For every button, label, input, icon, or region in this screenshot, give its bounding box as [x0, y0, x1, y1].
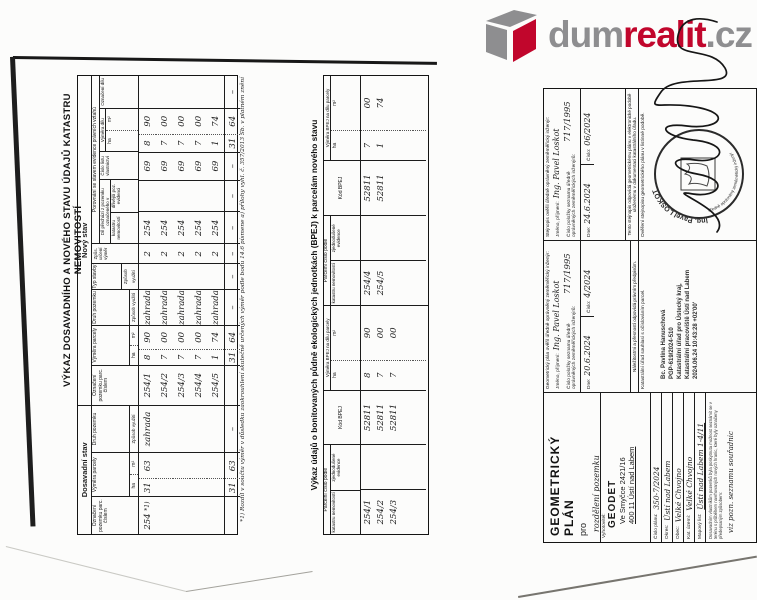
bpej-parcel: 254/5: [374, 260, 387, 305]
vykaz-footnote: *1) Rozdíl v součtu výměr v důsledku zao…: [240, 77, 246, 535]
new-dil-m2: 00: [190, 108, 207, 134]
bpej-kod: 52811: [374, 390, 387, 445]
vykaz-table: Dosavadní stav Nový stav Označení pozemk…: [77, 75, 238, 535]
titleblock-left-column: GEOMETRICKÝ PLÁN pro rozdělení pozemku V…: [544, 392, 756, 542]
total-dil-ha: 31: [225, 134, 240, 152]
new-dil-ha: 1: [207, 134, 224, 152]
signer-name: Bc. Pavlína Hanuschová: [660, 244, 668, 379]
bpej-ha: 7: [374, 360, 387, 390]
new-dil-m2: 00: [173, 108, 190, 134]
jmeno-label: Jméno, příjmení:: [556, 201, 561, 237]
gp-overil-box: Geometrický plán ověřil úředně oprávněný…: [544, 241, 639, 392]
col-dpe: dřívější poz. evidenci: [111, 180, 138, 211]
bpej-row: 254/2 52811 7 00: [374, 306, 387, 534]
polozka-value: 717/1995: [563, 253, 573, 294]
overeni-stejnopisu-cell: Ověření stejnopisu geometrického plánu v…: [639, 89, 756, 240]
katastralni-urad-cell: Katastrální úřad souhlasí s očíslováním …: [639, 241, 756, 392]
col-new-vymera: Výměra parcely: [93, 328, 99, 363]
logo-box-icon: [484, 6, 538, 62]
new-parcel: 254/3: [173, 365, 190, 405]
field-obec: Obec:Velké Chvojno: [672, 393, 683, 542]
new-m2: 74: [207, 325, 224, 349]
col-old-vymera: Výměra parcely: [93, 457, 99, 492]
col-bpej-ha: ha: [331, 130, 360, 160]
bpej-kod: 52811: [387, 390, 400, 445]
col-bpej-m2: m²: [331, 76, 360, 130]
field-label: Číslo plánu:: [654, 514, 659, 539]
new-kn: 254: [173, 211, 190, 243]
field-mapovy-list: Mapový list:Ústí nad Labem 1-4/11: [694, 393, 705, 542]
col-dil-ha: ha: [106, 130, 138, 152]
bpej-group-2: Parcelní číslo podle katastru nemovitost…: [324, 76, 428, 305]
gp-overil-footer: Náležitostmi a přesností odpovídá právní…: [630, 241, 638, 392]
vyhotovitel-addr2: 400 11 Ústí nad Labem: [627, 397, 636, 524]
vykaz-row: 254/2 7 00 zahrada 2 254 69 7 00: [156, 76, 173, 534]
new-ha: 8: [139, 349, 156, 365]
geometric-plan-titleblock: GEOMETRICKÝ PLÁN pro rozdělení pozemku V…: [543, 88, 757, 543]
col-kn: katastru nemovitostí: [111, 212, 138, 244]
owners-note: Dosavadním vlastníkům pozemků byla posky…: [708, 396, 723, 539]
new-kn: 254: [156, 211, 173, 243]
col-new-druh: Druh pozemku: [93, 291, 99, 324]
new-lv: 69: [139, 152, 156, 180]
total-dash: –: [225, 243, 240, 263]
katurad-header: Katastrální úřad souhlasí s očíslováním …: [641, 244, 646, 389]
bpej-parcel: 254/3: [387, 489, 400, 534]
bpej-group-1: Parcelní číslo podle katastru nemovitost…: [324, 305, 428, 534]
vykaz-row: 254/3 7 00 zahrada 2 254 69 7 00: [173, 76, 190, 534]
total-dash: –: [225, 289, 240, 325]
bpej-m2: 00: [361, 76, 374, 130]
stejnopis-footer: Tento stejnopis odpovídá geometrickému p…: [625, 89, 638, 240]
col-new-m2: m²: [130, 326, 138, 345]
jmeno-value: Ing. Pavel Loskot: [552, 128, 561, 198]
bpej-ha: 7: [361, 130, 374, 160]
bpej-title: Výkaz údajů o bonitovaných půdně ekologi…: [309, 75, 319, 535]
new-druh: zahrada: [190, 289, 207, 325]
col-typ-zpusob: Způsob využití: [122, 264, 138, 289]
owners-note-handwritten: viz pozn. seznamu souřadnic: [727, 396, 735, 533]
new-dil-ha: 8: [139, 134, 156, 152]
col-new-ha: ha: [130, 345, 138, 365]
total-dash: –: [225, 211, 240, 243]
polozka-value: 717/1995: [563, 101, 573, 142]
bpej-ha: 7: [387, 360, 400, 390]
gp-overil-header: Geometrický plán ověřil úředně oprávněný…: [544, 241, 551, 392]
col-new-zpusob: Způsob využití: [130, 290, 138, 325]
gp-pro: pro: [578, 399, 588, 536]
col-typ-stavby: Typ stavby: [93, 265, 99, 289]
bpej-kod: 52811: [361, 160, 374, 215]
new-druh: zahrada: [156, 289, 173, 325]
new-zpus: 2: [156, 243, 173, 263]
col-kod-bpej: Kód BPEJ: [339, 406, 345, 429]
jmeno-value: Ing. Pavel Loskot: [552, 280, 561, 350]
new-parcel: 254/5: [207, 365, 224, 405]
bpej-parcel: 254/1: [361, 489, 374, 534]
polozka-label: Číslo položky seznamu úředně oprávněných…: [567, 145, 577, 237]
scan-crease-right: [518, 556, 757, 598]
col-kod-bpej: Kód BPEJ: [339, 177, 345, 200]
new-druh: zahrada: [139, 289, 156, 325]
vykaz-table-rotated: VÝKAZ DOSAVADNÍHO A NOVÉHO STAVU ÚDAJŮ K…: [62, 75, 260, 535]
col-old-druh: Druh pozemku: [93, 413, 99, 446]
new-kn: 254: [207, 211, 224, 243]
new-m2: 00: [190, 325, 207, 349]
total-dash: –: [225, 405, 240, 453]
new-parcel: 254/4: [190, 365, 207, 405]
bpej-parcel: 254/2: [374, 489, 387, 534]
vykaz-new-state-header: Nový stav: [78, 76, 91, 405]
bpej-ha: 1: [374, 130, 387, 160]
field-value: Ústí nad Labem: [663, 461, 672, 521]
cislo-value: 4/2024: [583, 270, 592, 298]
field-value: 350-7/2024: [652, 466, 661, 509]
col-oznaceni-dilu: Označení dílu: [100, 76, 138, 108]
polozka-label: Číslo položky seznamu úředně oprávněných…: [567, 297, 577, 389]
new-druh: zahrada: [173, 289, 190, 325]
total-old-ha: 31: [225, 478, 240, 496]
total-new-ha: 31: [225, 349, 240, 365]
new-m2: 00: [156, 325, 173, 349]
authority-line2: Katastrální pracoviště Ústí nad Labem: [684, 244, 692, 379]
scanned-geometric-plan-page: dumrealit.cz VÝKAZ DOSAVADNÍHO A NOVÉHO …: [0, 0, 757, 600]
cislo-label: Číslo:: [587, 149, 592, 161]
new-ha: 7: [190, 349, 207, 365]
total-dash: –: [225, 76, 240, 108]
new-dil-ha: 7: [190, 134, 207, 152]
new-zpus: 2: [190, 243, 207, 263]
bpej-row: 254/1 52811 8 90: [361, 306, 374, 534]
logo-text-dum: dum: [548, 14, 623, 55]
field-label: Kat. území:: [687, 515, 692, 539]
scan-edge-left: [10, 57, 35, 527]
owners-note-cell: Dosavadním vlastníkům pozemků byla posky…: [705, 393, 756, 542]
titleblock-middle-column: Geometrický plán ověřil úředně oprávněný…: [544, 240, 756, 392]
stejnopis-header: Stejnopis ověřil úředně oprávněný zeměmě…: [544, 89, 551, 240]
vykaz-row: 254/5 1 74 zahrada 2 254 69 1 74: [207, 76, 224, 534]
col-old-ha: ha: [130, 474, 138, 496]
new-zpus: 2: [207, 243, 224, 263]
dne-value: 24.6.2024: [583, 183, 592, 224]
new-lv: 69: [207, 152, 224, 180]
col-lv: Číslo listu vlastnictví: [100, 151, 138, 179]
col-bpej-ze: zjednodušené evidence: [331, 216, 360, 261]
field-kat-uzemi: Kat. území:Velké Chvojno: [683, 393, 694, 542]
new-kn: 254: [190, 211, 207, 243]
dne-label: Dne:: [587, 379, 592, 389]
field-cislo-planu: Číslo plánu:350-7/2024: [650, 393, 661, 542]
col-bpej-ha: ha: [331, 360, 360, 390]
col-dil-m2: m²: [106, 109, 138, 130]
bpej-m2: 00: [374, 306, 387, 360]
stejnopis-overil-box: Stejnopis ověřil úředně oprávněný zeměmě…: [544, 89, 639, 240]
total-dash: –: [225, 263, 240, 289]
old-ha: 31: [139, 478, 156, 496]
jmeno-label: Jméno, příjmení:: [556, 353, 561, 389]
vyhotovitel-cell: Vyhotovitel: GEODET Ve Smyčce 2421/16 40…: [600, 393, 650, 542]
signature-timestamp: 2024.06.24 10:43:28 +02'00': [692, 244, 700, 379]
new-m2: 90: [139, 325, 156, 349]
col-zpusob-urceni: Způs. určení výměr: [93, 244, 108, 263]
col-old-parcel: Označení pozemku parc. číslem: [93, 497, 110, 534]
vykaz-old-state-header: Dosavadní stav: [78, 405, 91, 534]
bpej-row: 254/5 52811 1 74: [374, 76, 387, 305]
bpej-table: Parcelní číslo podle katastru nemovitost…: [323, 75, 429, 535]
bpej-kod: 52811: [374, 160, 387, 215]
geometric-plan-titleblock-rotated: GEOMETRICKÝ PLÁN pro rozdělení pozemku V…: [543, 88, 757, 543]
col-dil-prechazi: Díl přechází z pozemku označeného v: [100, 180, 110, 243]
bpej-m2: 00: [387, 306, 400, 360]
cislo-value: 06/2024: [583, 113, 592, 146]
col-porovnani: Porovnání se stavem evidence právních vz…: [92, 107, 99, 212]
new-dil-m2: 90: [139, 108, 156, 134]
new-dil-ha: 7: [156, 134, 173, 152]
bpej-parcel: 254/4: [361, 260, 374, 305]
field-value: Ústí nad Labem 1-4/11: [696, 423, 705, 510]
dne-value: 20.6.2024: [583, 335, 592, 376]
titleblock-right-column: Stejnopis ověřil úředně oprávněný zeměmě…: [544, 89, 756, 240]
digital-signature-block: Bc. Pavlína Hanuschová PGP-619/2024-510 …: [660, 244, 700, 379]
vykaz-totals-row: 31 63 – 31 64 – – – – – – 31 64 –: [224, 76, 240, 534]
col-bpej-m2: m²: [331, 306, 360, 360]
new-lv: 69: [173, 152, 190, 180]
bpej-row: 254/4 52811 7 00: [361, 76, 374, 305]
pgp-number: PGP-619/2024-510: [668, 244, 676, 379]
new-kn: 254: [139, 211, 156, 243]
field-okres: Okres:Ústí nad Labem: [661, 393, 672, 542]
new-ha: 7: [173, 349, 190, 365]
gp-title: GEOMETRICKÝ PLÁN: [548, 399, 576, 536]
field-label: Okres:: [665, 525, 670, 539]
dne-label: Dne:: [587, 227, 592, 237]
new-lv: 69: [190, 152, 207, 180]
field-value: Velké Chvojno: [674, 468, 683, 522]
vykaz-row: 254 *1) 31 63 zahrada 254/1 8 90 zahrada…: [139, 76, 156, 534]
scan-crease-left: [6, 546, 187, 592]
bpej-m2: 74: [374, 76, 387, 130]
total-dil-m2: 64: [225, 108, 240, 134]
new-dil-ha: 7: [173, 134, 190, 152]
field-value: Velké Chvojno: [685, 457, 694, 511]
col-bpej-ze: zjednodušené evidence: [331, 445, 360, 489]
new-zpus: 2: [173, 243, 190, 263]
bpej-row: 254/3 52811 7 00: [387, 306, 400, 534]
col-new-parcel: Označení pozemku parc. číslem: [93, 366, 110, 405]
new-parcel: 254/1: [139, 365, 156, 405]
bpej-table-rotated: Výkaz údajů o bonitovaných půdně ekologi…: [308, 75, 434, 535]
cislo-label: Číslo:: [587, 301, 592, 313]
total-dash: –: [225, 180, 240, 212]
bpej-ha: 8: [361, 360, 374, 390]
col-bpej-kn: katastru nemovitostí: [331, 261, 360, 306]
old-m2: 63: [139, 452, 156, 478]
vyhotovitel-addr1: Ve Smyčce 2421/16: [618, 397, 627, 524]
new-dil-m2: 74: [207, 108, 224, 134]
col-old-m2: m²: [130, 453, 138, 474]
col-old-zpusob: Způsob využití: [130, 406, 138, 453]
new-dil-m2: 00: [156, 108, 173, 134]
authority-line1: Katastrální úřad pro Ústecký kraj,: [676, 244, 684, 379]
scan-edge-top: [13, 56, 437, 65]
new-zpus: 2: [139, 243, 156, 263]
old-parcel: 254 *1): [139, 496, 156, 534]
new-m2: 00: [173, 325, 190, 349]
vyhotovitel-firm: GEODET: [607, 397, 618, 528]
total-old-m2: 63: [225, 452, 240, 478]
new-ha: 1: [207, 349, 224, 365]
field-label: Mapový list:: [698, 514, 703, 539]
new-druh: zahrada: [207, 289, 224, 325]
total-dash: –: [225, 152, 240, 180]
bpej-kod: 52811: [361, 390, 374, 445]
total-new-m2: 64: [225, 325, 240, 349]
new-parcel: 254/2: [156, 365, 173, 405]
vykaz-row: 254/4 7 00 zahrada 2 254 69 7 00: [190, 76, 207, 534]
col-bpej-kn: katastru nemovitostí: [331, 490, 360, 534]
handwritten-signature: [639, 10, 757, 240]
old-druh: zahrada: [139, 405, 156, 453]
new-ha: 7: [156, 349, 173, 365]
bpej-m2: 90: [361, 306, 374, 360]
scan-crease-mid: [186, 571, 313, 592]
new-lv: 69: [156, 152, 173, 180]
field-label: Obec:: [676, 526, 681, 539]
